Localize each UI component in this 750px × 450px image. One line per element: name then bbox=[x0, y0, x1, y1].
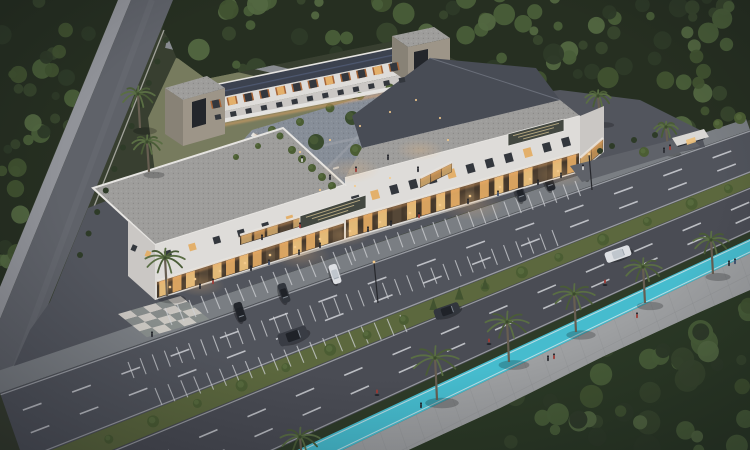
render-viewport bbox=[0, 0, 750, 450]
scene-canvas bbox=[0, 0, 750, 450]
vignette bbox=[0, 0, 750, 450]
